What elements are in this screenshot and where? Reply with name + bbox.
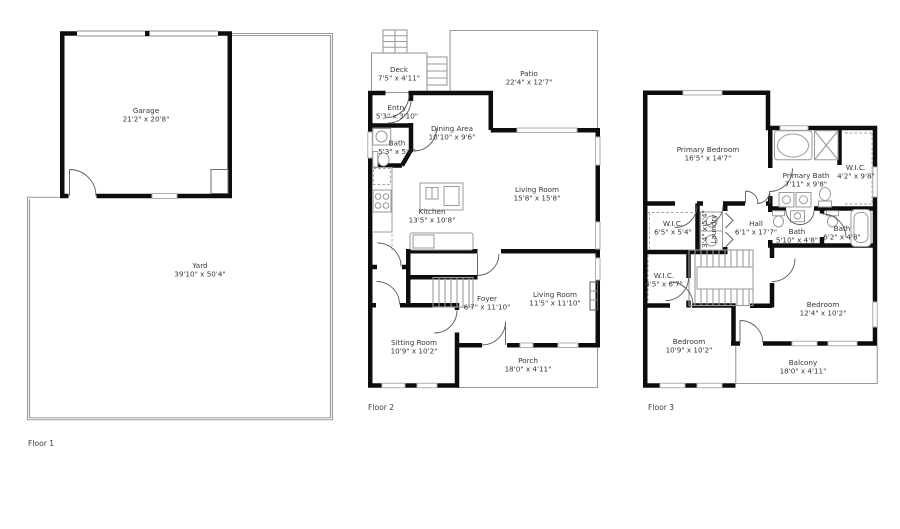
room-dims-wic1: 4'2" x 9'8": [837, 172, 875, 181]
room-dims-foyer: 6'7" x 11'10": [464, 303, 511, 312]
floor2-label: Floor 2: [368, 403, 394, 412]
room-dims-primary-bedroom: 16'5" x 14'7": [685, 154, 732, 163]
room-dims-dining: 10'10" x 9'6": [429, 133, 476, 142]
floor1-plan: [28, 31, 333, 420]
floor2-plan: [368, 30, 600, 388]
room-dims-porch: 18'0" x 4'11": [505, 365, 552, 374]
floor-plan-page: Garage 21'2" x 20'8" Yard 39'10" x 50'4"…: [0, 0, 900, 529]
room-dims-yard: 39'10" x 50'4": [174, 270, 225, 279]
room-dims-deck: 7'5" x 4'11": [378, 74, 420, 83]
floor1-label: Floor 1: [28, 439, 54, 448]
room-dims-bedroom10: 10'9" x 10'2": [666, 346, 713, 355]
floor3-label: Floor 3: [648, 403, 674, 412]
room-dims-garage: 21'2" x 20'8": [123, 115, 170, 124]
room-dims-wic3: 4'5" x 6'7": [645, 280, 683, 289]
floor3-stairs: [689, 250, 753, 306]
floor1-labels: Garage 21'2" x 20'8" Yard 39'10" x 50'4"…: [28, 106, 226, 448]
garage-window: [152, 194, 177, 199]
room-dims-kitchen: 13'5" x 10'8": [409, 216, 456, 225]
floor2-labels: Deck 7'5" x 4'11" Patio 22'4" x 12'7" En…: [368, 65, 581, 412]
room-dims-hall: 6'1" x 17'7": [735, 228, 777, 237]
floor2-outdoor-outlines: [372, 30, 598, 388]
room-dims-primary-bath: 7'11" x 9'8": [785, 180, 827, 189]
yard-outline: [28, 34, 333, 420]
room-dims-bath2: 6'2" x 4'8": [823, 233, 861, 242]
room-dims-bath2f: 5'3" x 5'0": [378, 147, 416, 156]
room-dims-entry: 5'3" x 3'10": [376, 112, 418, 121]
room-dims-living2: 11'5" x 11'10": [529, 299, 580, 308]
room-dims-patio: 22'4" x 12'7": [506, 78, 553, 87]
room-dims-wic2: 6'5" x 5'4": [654, 228, 692, 237]
room-dims-laundry: 3'4" x 5'4": [700, 210, 709, 248]
room-dims-living1: 15'8" x 15'8": [514, 194, 561, 203]
floor3-labels: Primary Bedroom 16'5" x 14'7" Primary Ba…: [645, 145, 875, 412]
room-dims-balcony: 18'0" x 4'11": [780, 367, 827, 376]
garage-entry-door: [70, 170, 97, 197]
room-label-laundry: Laundry: [709, 214, 718, 244]
room-dims-bedroom12: 12'4" x 10'2": [800, 309, 847, 318]
floor3-primary-bath-fixtures: [775, 131, 839, 207]
room-dims-bath1: 5'10" x 4'8": [776, 236, 818, 245]
garage-door: [77, 31, 218, 36]
room-dims-sitting: 10'9" x 10'2": [391, 347, 438, 356]
garage-utility-closet: [211, 170, 228, 194]
floor-plan-canvas: Garage 21'2" x 20'8" Yard 39'10" x 50'4"…: [0, 0, 900, 529]
